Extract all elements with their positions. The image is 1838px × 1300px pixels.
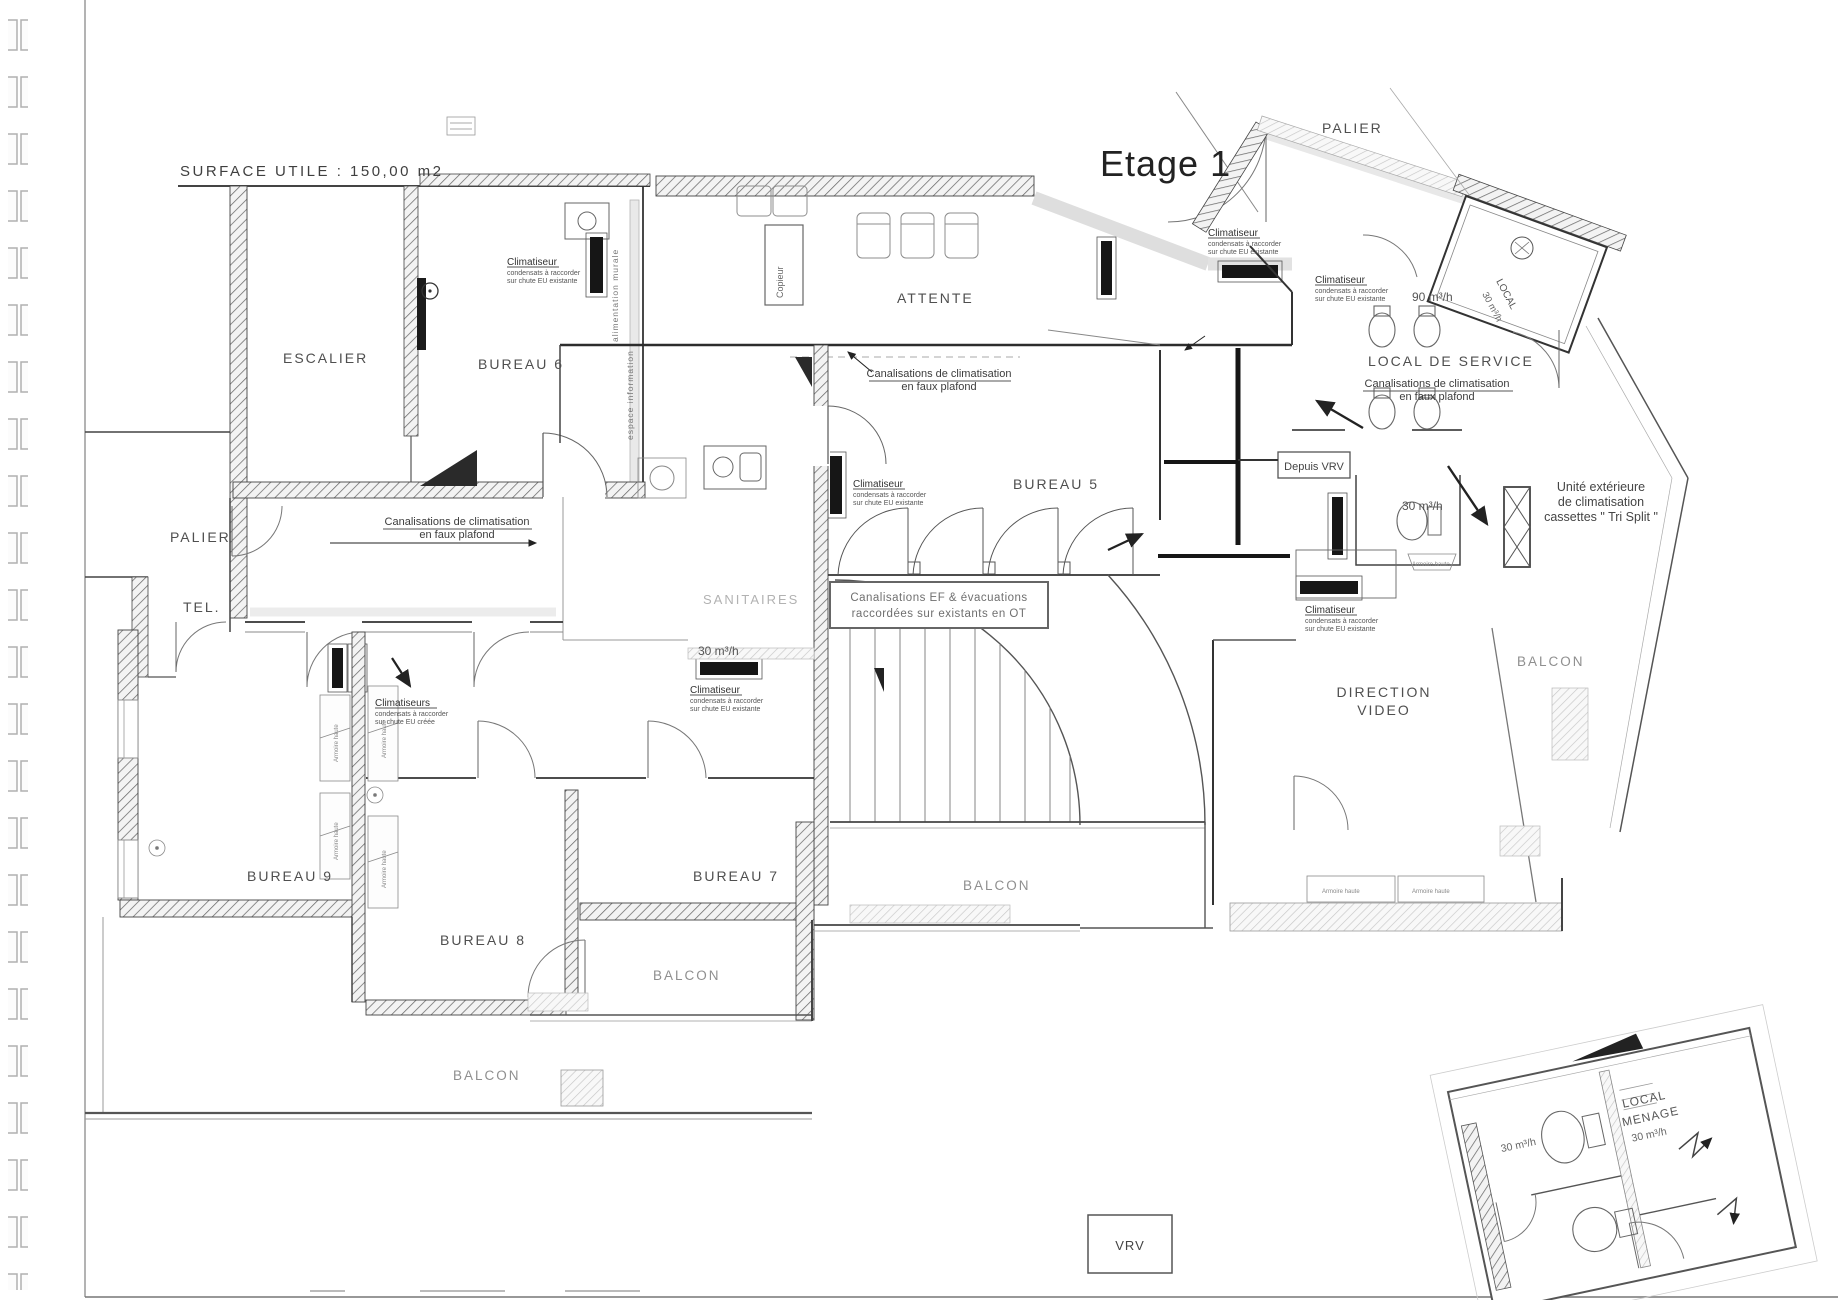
- scanned-floor-plan-page: 30 m³/h LOCAL MENAGE 30 m³/h VRV SURFACE…: [0, 0, 1838, 1300]
- canal-ef-l2: raccordées sur existants en OT: [852, 608, 1027, 620]
- inset-local-menage: 30 m³/h LOCAL MENAGE 30 m³/h: [1430, 1005, 1817, 1300]
- room-label-palier-top: PALIER: [1322, 120, 1383, 136]
- walls-upper-left-block: [178, 174, 1034, 618]
- clim-central-l2: condensats à raccorder: [853, 492, 927, 499]
- alimentation-murale-label: alimentation murale: [610, 249, 620, 342]
- clim-bureau9-title: Climatiseurs: [375, 698, 430, 709]
- sink-counter: [565, 203, 609, 239]
- copier-label: Copieur: [775, 266, 785, 298]
- canal-left-l2: en faux plafond: [419, 529, 494, 541]
- surface-utile-label: SURFACE UTILE : 150,00 m2: [180, 163, 443, 180]
- room-label-sanitaires: SANITAIRES: [703, 592, 799, 607]
- armoire-haute-label: Armoire haute: [1322, 889, 1360, 895]
- floor-plan-svg: 30 m³/h LOCAL MENAGE 30 m³/h VRV SURFACE…: [0, 0, 1838, 1300]
- clim-attente-title: Climatiseur: [1208, 228, 1259, 239]
- sanitaires-fixtures: [638, 446, 766, 498]
- armoire-haute-label: Armoire haute: [334, 822, 340, 860]
- walls-corridor-left: [85, 432, 563, 687]
- vrv-box-group: VRV: [1088, 1215, 1172, 1273]
- clim-attente-l2: condensats à raccorder: [1208, 241, 1282, 248]
- binder-holes: [8, 0, 28, 1290]
- room-label-tel: TEL.: [183, 599, 221, 615]
- floor-title: Etage 1: [1100, 143, 1231, 184]
- room-label-local-de-service: LOCAL DE SERVICE: [1368, 353, 1534, 369]
- walls-top-right-wing: [1164, 88, 1688, 832]
- clim-dirvideo-l2: condensats à raccorder: [1305, 618, 1379, 625]
- chair: [901, 213, 934, 258]
- room-label-direction-2: VIDEO: [1357, 702, 1411, 718]
- flow-30-sanitaires-label: 30 m³/h: [698, 644, 739, 658]
- clim-local-service-l3: sur chute EU existante: [1315, 296, 1386, 303]
- canal-left-l1: Canalisations de climatisation: [385, 516, 530, 528]
- clim-dirvideo-title: Climatiseur: [1305, 605, 1356, 616]
- unite-ext-l1: Unité extérieure: [1557, 480, 1645, 494]
- canal-ef-box: [830, 582, 1048, 628]
- walls-direction-video: [1158, 550, 1588, 931]
- room-label-balcon-west: BALCON: [453, 1068, 521, 1083]
- flow-90-label: 90 m³/h: [1412, 290, 1453, 304]
- room-label-attente: ATTENTE: [897, 290, 974, 306]
- clim-sanitaires-l2: condensats à raccorder: [690, 698, 764, 705]
- clim-central-l3: sur chute EU existante: [853, 500, 924, 507]
- closet-local: [1415, 174, 1627, 357]
- canal-right-l2: en faux plafond: [1399, 391, 1474, 403]
- canal-right-l1: Canalisations de climatisation: [1365, 378, 1510, 390]
- flow-30-wc-label: 30 m³/h: [1402, 499, 1443, 513]
- chair: [857, 213, 890, 258]
- clim-bureau6-l3: sur chute EU existante: [507, 278, 578, 285]
- room-label-bureau7: BUREAU 7: [693, 868, 779, 884]
- armoire-haute-label: Armoire haute: [382, 850, 388, 888]
- clim-bureau6-l2: condensats à raccorder: [507, 270, 581, 277]
- armoire-haute-label: Armoire haute: [382, 720, 388, 758]
- clim-bureau9-l2: condensats à raccorder: [375, 711, 449, 718]
- room-label-bureau6: BUREAU 6: [478, 356, 564, 372]
- vrv-label: VRV: [1115, 1238, 1145, 1253]
- clim-central-title: Climatiseur: [853, 479, 904, 490]
- room-label-bureau8: BUREAU 8: [440, 932, 526, 948]
- text-labels: SURFACE UTILE : 150,00 m2 Etage 1 PALIER…: [170, 120, 1658, 1083]
- espace-information-label: espace information: [625, 350, 635, 440]
- curved-stair: [828, 508, 1213, 928]
- radiator-bar: [417, 278, 426, 350]
- dark-wedge-bureau6: [420, 450, 477, 486]
- clim-local-service-l2: condensats à raccorder: [1315, 288, 1389, 295]
- room-label-balcon-south: BALCON: [653, 968, 721, 983]
- armoire-haute-label: Armoire haute: [1412, 562, 1450, 568]
- unite-ext-l2: de climatisation: [1558, 495, 1644, 509]
- room-label-direction-1: DIRECTION: [1337, 684, 1432, 700]
- small-equipment-box: [447, 117, 475, 135]
- clim-dirvideo-l3: sur chute EU existante: [1305, 626, 1376, 633]
- room-label-balcon-east: BALCON: [1517, 654, 1585, 669]
- clim-sanitaires-l3: sur chute EU existante: [690, 706, 761, 713]
- clim-attente-l3: sur chute EU existante: [1208, 249, 1279, 256]
- clim-local-service-title: Climatiseur: [1315, 275, 1366, 286]
- depuis-vrv-label: Depuis VRV: [1284, 461, 1344, 473]
- unite-ext-l3: cassettes " Tri Split ": [1544, 510, 1658, 524]
- room-label-bureau9: BUREAU 9: [247, 868, 333, 884]
- clim-sanitaires-title: Climatiseur: [690, 685, 741, 696]
- room-label-escalier: ESCALIER: [283, 350, 368, 366]
- canal-center-l2: en faux plafond: [901, 381, 976, 393]
- armoire-haute-label: Armoire haute: [334, 724, 340, 762]
- canal-center-l1: Canalisations de climatisation: [867, 368, 1012, 380]
- room-label-palier-left: PALIER: [170, 529, 231, 545]
- chair: [945, 213, 978, 258]
- room-label-balcon-center: BALCON: [963, 878, 1031, 893]
- exterior-unit-x: [1504, 487, 1530, 567]
- room-label-bureau5: BUREAU 5: [1013, 476, 1099, 492]
- canal-ef-l1: Canalisations EF & évacuations: [850, 592, 1027, 604]
- balconies-south: [85, 905, 1080, 1119]
- armoire-haute-label: Armoire haute: [1412, 889, 1450, 895]
- clim-bureau6-title: Climatiseur: [507, 257, 558, 268]
